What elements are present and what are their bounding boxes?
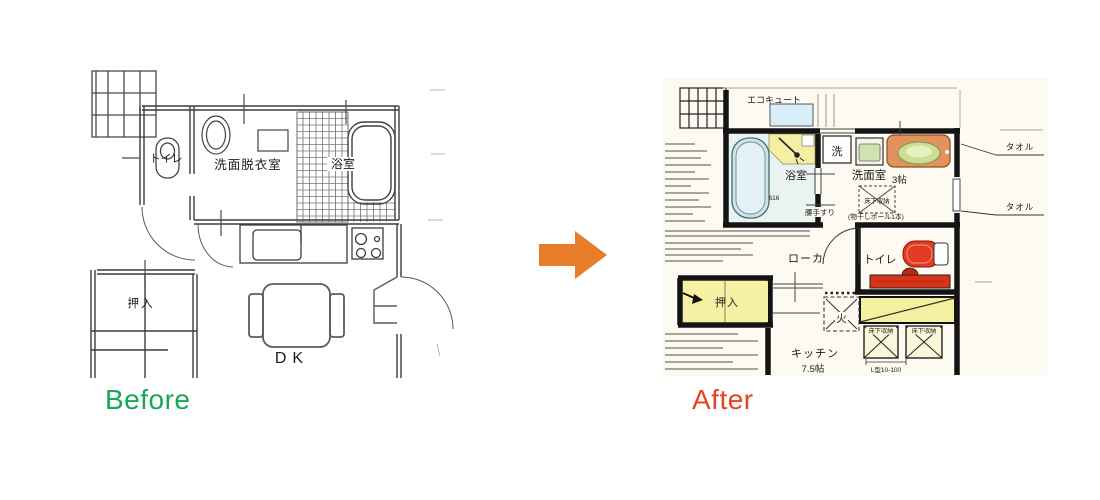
bath-label: 浴室	[785, 168, 807, 182]
kitchen-label: キッチン	[791, 347, 839, 360]
handrail-label: 腰手すり	[805, 207, 835, 217]
walls	[91, 106, 401, 378]
stairs-strip	[860, 297, 955, 323]
dining-table-icon	[249, 284, 344, 347]
right-arrow-shape	[539, 231, 607, 279]
washroom-door-leaf	[953, 179, 960, 211]
ecocute-label: エコキュート	[747, 95, 801, 105]
pole-note-label: (物干しポール1本)	[848, 212, 904, 221]
before-floor-plan: トイレ 洗面脱衣室 浴室 押入 DK	[90, 62, 462, 380]
washroom-size-label: 3帖	[892, 174, 907, 186]
washing-machine-icon	[856, 138, 883, 165]
underfloor-label-2: 床下収納	[869, 327, 894, 335]
wash-basin-icon	[202, 116, 288, 154]
scan-marks	[428, 90, 445, 356]
window-lattice-icon	[92, 71, 156, 137]
kitchen-counter-icon	[240, 225, 383, 263]
bathtub-icon	[732, 138, 769, 218]
closet-label: 押入	[128, 296, 155, 310]
toilet-label: トイレ	[864, 254, 897, 266]
towel-label-bottom: タオル	[1006, 202, 1035, 212]
underfloor-label: 床下収納	[864, 196, 889, 205]
bath-window	[802, 135, 814, 146]
dimension-note: L型10-100	[871, 365, 902, 374]
dk-label: DK	[275, 350, 309, 367]
bath-dim-label: 616	[769, 195, 780, 202]
before-after-floorplan-slide: トイレ 洗面脱衣室 浴室 押入 DK	[0, 0, 1100, 500]
closet-label: 押入	[715, 295, 739, 309]
corridor-label: ローカ	[788, 252, 824, 265]
toilet-label: トイレ	[150, 153, 183, 165]
before-caption: Before	[105, 384, 191, 416]
bath-label: 浴室	[331, 156, 355, 171]
fire-label: 火	[836, 313, 847, 325]
washer-label: 洗	[832, 145, 843, 158]
after-floor-plan: エコキュート 浴室 616 腰手すり 洗 洗面室 3帖 床下収納 (物干しポール…	[663, 66, 1048, 378]
before-after-arrow-icon	[539, 231, 611, 281]
ecocute-unit-icon	[770, 104, 813, 126]
toilet-fixture-icon	[903, 241, 948, 267]
vanity-sink-icon	[887, 135, 950, 167]
underfloor-label-3: 床下収納	[912, 327, 937, 335]
kitchen-size-label: 7.5帖	[802, 363, 825, 375]
towel-label-top: タオル	[1006, 142, 1035, 152]
washroom-label: 洗面室	[852, 168, 887, 182]
washroom-label: 洗面脱衣室	[214, 157, 282, 172]
after-caption: After	[692, 384, 754, 416]
